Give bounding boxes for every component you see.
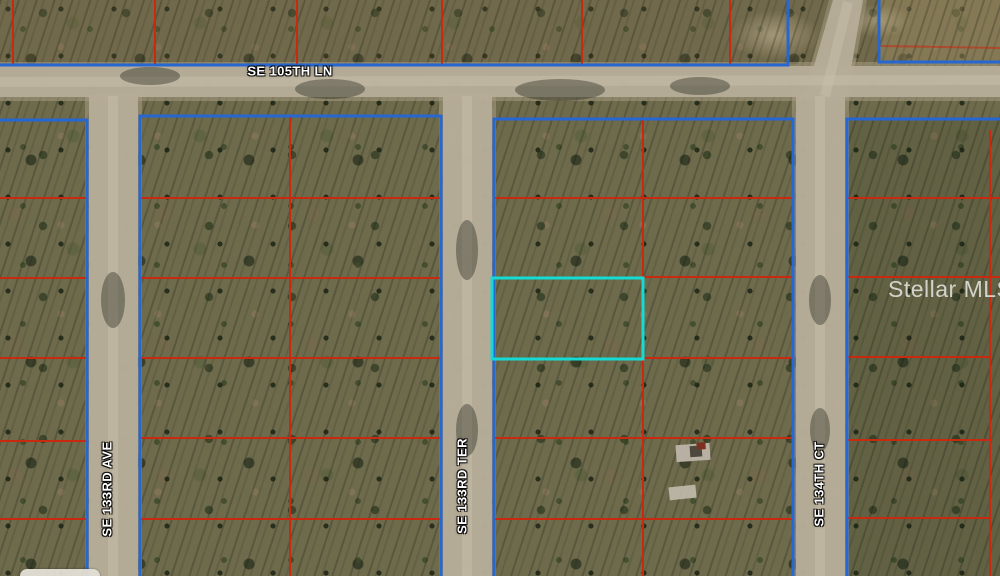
- building-structure: [668, 442, 710, 500]
- map-viewport[interactable]: SE 105TH LN SE 133RD AVE SE 133RD TER SE…: [0, 0, 1000, 576]
- highlighted-parcel-outline: [492, 278, 643, 359]
- parcel-map-overlay: [0, 0, 1000, 576]
- partial-ui-fragment: [20, 569, 100, 576]
